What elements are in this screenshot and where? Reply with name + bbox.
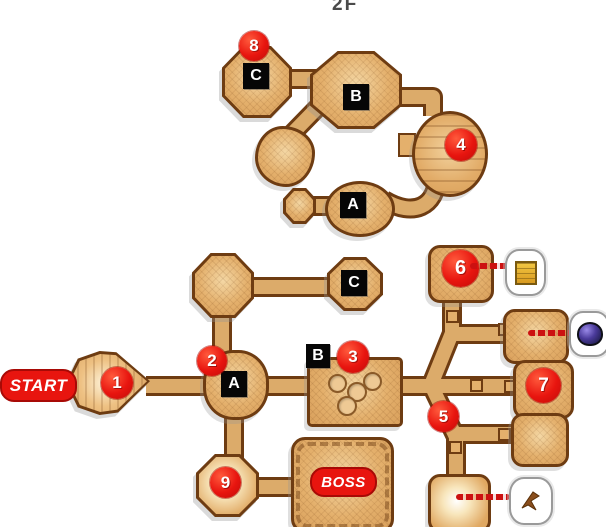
badge-number: 5 xyxy=(439,407,448,427)
floor-hole xyxy=(337,396,357,416)
room-lower-right xyxy=(511,413,569,467)
room-mid-octagon xyxy=(192,253,254,318)
item-pointer-arrow xyxy=(528,330,574,336)
floor-hole xyxy=(328,374,347,393)
stair-label: C xyxy=(250,67,262,85)
door-connector xyxy=(446,310,459,323)
badge-room-1: 1 xyxy=(101,367,133,399)
badge-number: 7 xyxy=(538,375,549,397)
badge-number: 3 xyxy=(348,347,357,367)
room-gem-chest xyxy=(503,309,569,364)
door-connector xyxy=(470,379,483,392)
item-gem xyxy=(569,311,606,357)
stair-c-lower: C xyxy=(341,270,367,296)
map-scroll-icon xyxy=(515,261,537,285)
stair-c-upper: C xyxy=(243,63,269,89)
stair-label: B xyxy=(312,347,324,365)
stair-label: A xyxy=(347,196,359,214)
badge-room-8: 8 xyxy=(239,31,269,61)
item-hook xyxy=(509,477,553,525)
badge-number: 2 xyxy=(207,351,216,371)
stair-a-upper: A xyxy=(340,192,366,218)
badge-room-4: 4 xyxy=(445,129,477,161)
start-text: START xyxy=(10,376,68,396)
stair-a-lower: A xyxy=(221,371,247,397)
stair-label: B xyxy=(350,88,362,106)
room-hook-chest xyxy=(428,474,491,527)
badge-room-7: 7 xyxy=(526,368,561,403)
badge-room-3: 3 xyxy=(337,341,369,373)
dungeon-map: C B A C A B 1 2 3 4 5 6 7 8 9 START BOSS… xyxy=(0,0,606,527)
badge-number: 1 xyxy=(112,373,121,393)
stair-label: A xyxy=(228,375,240,393)
badge-room-9: 9 xyxy=(210,467,241,498)
item-map xyxy=(505,249,546,296)
stair-b-lower: B xyxy=(306,344,330,368)
badge-number: 6 xyxy=(455,257,466,280)
item-pointer-arrow xyxy=(456,494,510,500)
badge-number: 9 xyxy=(221,473,230,493)
stair-b-upper: B xyxy=(343,84,369,110)
floor-hole xyxy=(363,372,382,391)
room-small-octagon-upper xyxy=(283,188,316,224)
badge-room-5: 5 xyxy=(428,401,459,432)
badge-room-2: 2 xyxy=(197,346,227,376)
boss-text: BOSS xyxy=(321,474,366,491)
badge-number: 4 xyxy=(456,135,465,155)
door-connector xyxy=(449,441,462,454)
badge-number: 8 xyxy=(249,36,258,56)
boomerang-icon xyxy=(519,488,543,514)
stair-label: C xyxy=(348,274,360,292)
door-connector xyxy=(498,428,511,441)
gem-icon xyxy=(577,322,603,346)
item-pointer-arrow xyxy=(470,263,508,269)
floor-label: 2F xyxy=(332,0,358,16)
boss-label: BOSS xyxy=(310,467,377,497)
start-label: START xyxy=(0,369,77,402)
